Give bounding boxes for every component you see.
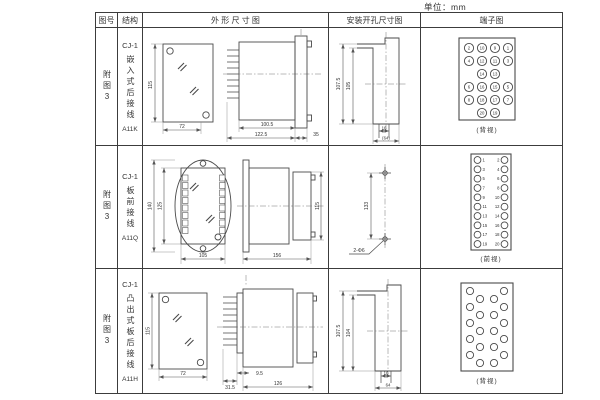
terminal-circle	[474, 222, 481, 229]
mounting-hole	[200, 246, 206, 252]
model-label-2: CJ-1	[122, 172, 138, 181]
terminal-circle	[501, 231, 508, 238]
terminal-number: 1	[507, 46, 510, 51]
dim-label-gap: 9.5	[256, 371, 263, 377]
terminal-number: 9	[494, 46, 497, 51]
terminal-diagram-a11h: (背视)	[421, 269, 562, 393]
dim-label-side-h: 115	[315, 202, 321, 210]
mounting-hole	[215, 234, 221, 240]
terminal-circle	[466, 319, 473, 326]
terminal-circle	[501, 157, 508, 164]
fig-no-cell-3: 附图3	[96, 269, 118, 394]
dim-label-outer-h: 107.5	[336, 78, 342, 91]
structure-cell-3: CJ-1 凸出式板后接线 A11H	[118, 269, 143, 394]
outline-cell-3: 115 72 9.5	[143, 269, 329, 394]
mounting-hole	[167, 48, 173, 54]
terminal-number: 20	[495, 242, 500, 247]
view-label: (前视)	[480, 254, 501, 263]
terminal-circle	[500, 303, 507, 310]
terminal-circle	[500, 351, 507, 358]
terminal-block: 2 10 9 1 4 12 11 3 14 13 6 16 15 5 8 18	[459, 38, 515, 120]
terminal-number: 14	[495, 214, 500, 219]
dim-label-width: 72	[180, 371, 186, 377]
mounting-hole	[200, 161, 206, 167]
pin-comb	[223, 297, 237, 345]
mounting-drawing-a11q: 133 2-Φ6	[329, 146, 420, 268]
terminal-number: 16	[480, 85, 485, 90]
terminal-number: 5	[483, 176, 486, 181]
terminal-number: 4	[497, 167, 500, 172]
structure-cell-1: CJ-1 嵌入式后接线 A11K	[118, 28, 143, 146]
terminal-number: 2	[468, 46, 471, 51]
terminal-number: 17	[493, 98, 498, 103]
side-view: 9.5 31.5 126	[217, 275, 323, 391]
terminal-circle	[500, 287, 507, 294]
flange	[295, 36, 307, 128]
header-terminal: 端子图	[421, 13, 563, 28]
terminal-number: 13	[483, 214, 488, 219]
dim-label-total: 122.5	[255, 132, 268, 138]
outline-drawing-a11h: 115 72 9.5	[143, 269, 328, 393]
screw-mark-icon	[206, 215, 215, 223]
structure-label-3: 凸出式板后接线	[126, 294, 134, 371]
terminal-circle	[501, 166, 508, 173]
terminal-block	[461, 283, 513, 371]
spec-table: 图号 结构 外 形 尺 寸 图 安装开孔尺寸图 端子图 附图3 CJ-1 嵌入式…	[95, 12, 563, 394]
terminal-circle	[476, 343, 483, 350]
front-view: 115 72	[148, 44, 213, 134]
terminal-circle	[490, 311, 497, 318]
header-structure: 结构	[118, 13, 143, 28]
side-view: 115 156	[237, 160, 325, 264]
terminal-number: 19	[493, 111, 498, 116]
dim-label-pin: 31.5	[225, 385, 235, 391]
outline-drawing-a11q: 140 125 105	[143, 146, 328, 268]
terminal-number: 1	[483, 158, 486, 163]
terminal-circle	[466, 287, 473, 294]
terminal-circle	[476, 295, 483, 302]
code-label-3: A11H	[122, 376, 138, 383]
terminal-circle	[476, 359, 483, 366]
terminal-circle	[490, 343, 497, 350]
dim-label-height: 115	[148, 81, 154, 89]
terminal-circle	[490, 327, 497, 334]
terminal-number: 6	[497, 176, 500, 181]
terminal-circle	[501, 185, 508, 192]
dim-label-outer-h: 107.5	[336, 325, 342, 338]
fig-no-cell-2: 附图3	[96, 146, 118, 269]
mounting-hole	[197, 359, 203, 365]
hole-cross	[379, 167, 391, 179]
terminal-circle	[501, 222, 508, 229]
screw-mark-icon	[173, 314, 182, 322]
terminal-number: 7	[507, 98, 510, 103]
terminal-circle	[501, 194, 508, 201]
structure-cell-2: CJ-1 板前接线 A11Q	[118, 146, 143, 269]
terminal-number: 16	[495, 223, 500, 228]
view-label: (背视)	[476, 125, 497, 134]
terminal-circle	[490, 295, 497, 302]
terminal-diagram-a11k: 2 10 9 1 4 12 11 3 14 13 6 16 15 5 8 18	[421, 28, 562, 145]
terminal-circle	[476, 327, 483, 334]
terminal-circle	[474, 213, 481, 220]
terminal-number: 2	[497, 158, 500, 163]
fig-no-1: 附图3	[103, 70, 111, 104]
terminal-number: 3	[507, 59, 510, 64]
terminal-circle	[474, 175, 481, 182]
mounting-profile: 133 2-Φ6	[349, 164, 391, 254]
terminal-circle	[500, 335, 507, 342]
terminal-circle	[466, 303, 473, 310]
dim-label-slot: 16	[382, 126, 387, 131]
relay-body	[243, 289, 293, 367]
model-label-1: CJ-1	[122, 41, 138, 50]
dim-label-body: 126	[274, 381, 283, 387]
terminal-number: 12	[495, 204, 500, 209]
terminal-number: 17	[483, 232, 488, 237]
header-mounting: 安装开孔尺寸图	[329, 13, 421, 28]
front-view: 115 72	[146, 293, 208, 381]
terminal-number: 4	[468, 59, 471, 64]
terminal-number: 7	[483, 186, 486, 191]
terminal-block: 1 2 3 4 5 6 7 8 9 10 11 12 13 14 15 16 1	[471, 154, 511, 250]
header-fig-no: 图号	[96, 13, 118, 28]
terminal-cell-1: 2 10 9 1 4 12 11 3 14 13 6 16 15 5 8 18	[421, 28, 563, 146]
fig-no-3: 附图3	[103, 314, 111, 348]
outline-cell-2: 140 125 105	[143, 146, 329, 269]
dim-label-span: 133	[364, 202, 370, 211]
terminal-number: 11	[493, 59, 498, 64]
terminal-circle	[501, 241, 508, 248]
terminal-circle	[474, 157, 481, 164]
outline-cell-1: 115 72 100.5	[143, 28, 329, 146]
mounting-drawing-a11h: 107.5 104 16 64	[329, 269, 420, 393]
terminal-number: 15	[493, 85, 498, 90]
dim-label-slot: 16	[384, 371, 389, 376]
screw-mark-icon	[190, 87, 199, 95]
terminal-circle	[474, 166, 481, 173]
terminal-number: 19	[483, 242, 488, 247]
terminal-number: 14	[480, 72, 485, 77]
structure-label-1: 嵌入式后接线	[126, 55, 134, 121]
dim-label-height: 115	[146, 327, 152, 335]
terminal-cell-2: 1 2 3 4 5 6 7 8 9 10 11 12 13 14 15 16 1	[421, 146, 563, 269]
terminal-number: 12	[480, 59, 485, 64]
terminal-circle	[474, 185, 481, 192]
dim-label-inner-h: 125	[158, 202, 164, 211]
view-label: (背视)	[476, 376, 497, 385]
fig-no-2: 附图3	[103, 190, 111, 224]
terminal-number: 20	[480, 111, 485, 116]
mounting-profile: 107.5 104 16 64	[336, 279, 409, 391]
dim-label-body: 100.5	[261, 122, 274, 128]
terminal-circle	[474, 203, 481, 210]
code-label-2: A11Q	[122, 235, 138, 242]
mounting-hole	[162, 296, 168, 302]
mounting-profile: 107.5 105 16 (64)	[336, 32, 407, 144]
dim-label-inner-h: 104	[346, 329, 352, 338]
screw-mark-icon	[178, 63, 187, 71]
terminal-number: 15	[483, 223, 488, 228]
mounting-drawing-a11k: 107.5 105 16 (64)	[329, 28, 420, 145]
fig-no-cell-1: 附图3	[96, 28, 118, 146]
dim-label-cutout: (64)	[382, 136, 390, 141]
dim-label-flange: 35	[313, 132, 319, 138]
dim-label-holes: 2-Φ6	[353, 248, 364, 254]
mounting-cell-1: 107.5 105 16 (64)	[329, 28, 421, 146]
terminal-circle	[476, 311, 483, 318]
terminal-circle	[500, 319, 507, 326]
mounting-hole	[203, 112, 209, 118]
terminal-number: 18	[480, 98, 485, 103]
dim-label-outer-h: 140	[148, 202, 154, 211]
screw-mark-icon	[190, 183, 199, 191]
terminal-number: 8	[468, 98, 471, 103]
front-view: 140 125 105	[148, 160, 232, 264]
page: 单位：mm 图号 结构 外 形 尺 寸 图 安装开孔尺寸图 端子图 附图3 CJ…	[0, 0, 600, 400]
dim-label-width: 72	[179, 124, 185, 130]
terminal-number: 13	[493, 72, 498, 77]
relay-body	[239, 42, 295, 120]
terminal-number: 11	[483, 204, 488, 209]
header-outline: 外 形 尺 寸 图	[143, 13, 329, 28]
terminal-number: 18	[495, 232, 500, 237]
terminal-circle	[474, 194, 481, 201]
outline-drawing-a11k: 115 72 100.5	[143, 28, 328, 145]
dim-label-inner-h: 105	[346, 82, 352, 91]
terminal-number: 10	[495, 195, 500, 200]
terminal-circle	[501, 203, 508, 210]
terminal-cell-3: (背视)	[421, 269, 563, 394]
structure-label-2: 板前接线	[126, 186, 134, 230]
screw-mark-icon	[185, 338, 194, 346]
mounting-cell-2: 133 2-Φ6	[329, 146, 421, 269]
dim-label-total: 156	[273, 253, 282, 259]
side-view: 100.5 122.5 35	[223, 29, 323, 142]
terminal-number: 3	[483, 167, 486, 172]
terminal-number: 5	[507, 85, 510, 90]
dim-label-width: 105	[199, 253, 208, 259]
terminal-circle	[490, 359, 497, 366]
terminal-number: 10	[480, 46, 485, 51]
terminal-number: 9	[483, 195, 486, 200]
terminal-number: 8	[497, 186, 500, 191]
terminal-circle	[474, 241, 481, 248]
terminal-circle	[466, 335, 473, 342]
rear-block	[297, 293, 313, 363]
model-label-3: CJ-1	[122, 280, 138, 289]
terminal-number: 6	[468, 85, 471, 90]
pin-plate	[237, 293, 243, 353]
terminal-circle	[501, 213, 508, 220]
terminal-circle	[474, 231, 481, 238]
dim-label-cutout: 64	[386, 383, 391, 388]
mounting-cell-3: 107.5 104 16 64	[329, 269, 421, 394]
terminal-circle	[466, 351, 473, 358]
terminal-circle	[501, 175, 508, 182]
code-label-1: A11K	[122, 126, 137, 133]
terminal-diagram-a11q: 1 2 3 4 5 6 7 8 9 10 11 12 13 14 15 16 1	[421, 146, 562, 268]
